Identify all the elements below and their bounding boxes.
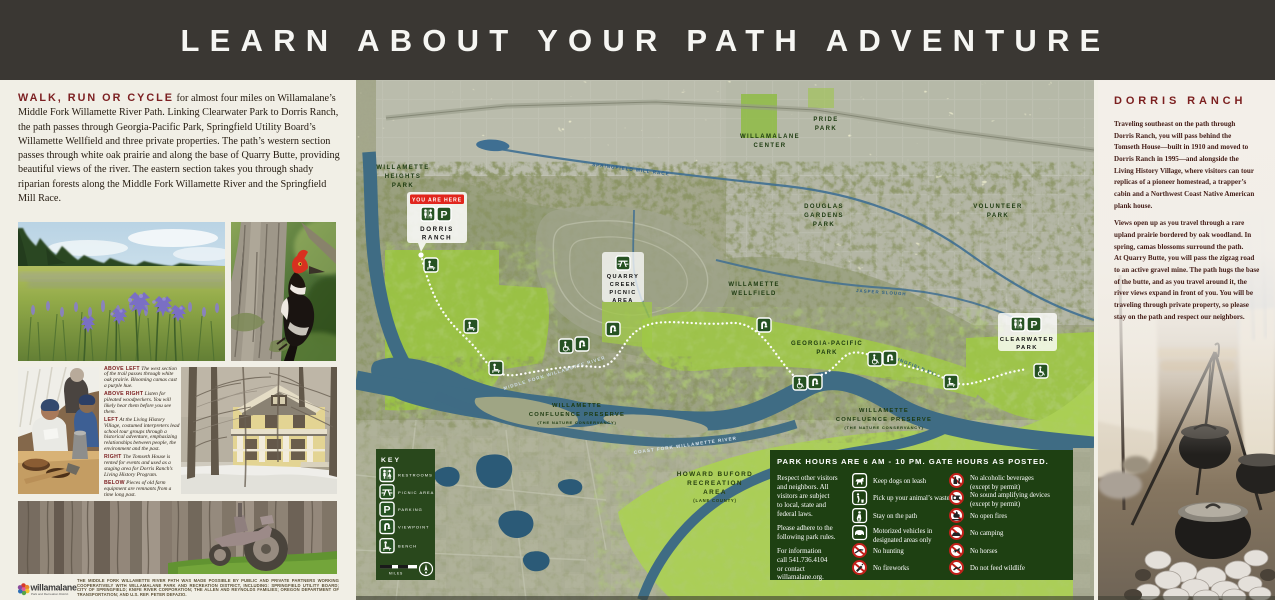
svg-text:PARK HOURS ARE 6 AM - 10 PM. G: PARK HOURS ARE 6 AM - 10 PM. GATE HOURS … — [777, 457, 1049, 466]
svg-text:BENCH: BENCH — [398, 544, 417, 549]
svg-text:CLEARWATER: CLEARWATER — [1000, 337, 1054, 343]
svg-text:CONFLUENCE PRESERVE: CONFLUENCE PRESERVE — [836, 417, 932, 423]
svg-text:For information: For information — [777, 547, 822, 555]
svg-text:PARK: PARK — [1016, 345, 1038, 351]
svg-text:federal laws.: federal laws. — [777, 510, 813, 518]
svg-text:No hunting: No hunting — [873, 548, 904, 555]
svg-text:(except by permit): (except by permit) — [970, 501, 1020, 508]
svg-text:call 541.736.4104: call 541.736.4104 — [777, 556, 828, 564]
svg-text:CREEK: CREEK — [610, 282, 637, 288]
svg-text:PICNIC AREA: PICNIC AREA — [398, 490, 434, 495]
svg-text:HEIGHTS: HEIGHTS — [385, 174, 421, 180]
svg-text:RESTROOMS: RESTROOMS — [398, 473, 433, 478]
svg-text:following park rules.: following park rules. — [777, 533, 836, 541]
svg-text:RANCH: RANCH — [422, 235, 452, 242]
svg-text:WILLAMALANE: WILLAMALANE — [740, 134, 800, 140]
svg-text:PICNIC: PICNIC — [609, 290, 636, 296]
svg-text:No alcoholic beverages: No alcoholic beverages — [970, 475, 1034, 482]
svg-text:CONFLUENCE PRESERVE: CONFLUENCE PRESERVE — [529, 412, 625, 418]
svg-text:designated areas only: designated areas only — [873, 537, 932, 544]
svg-text:PRIDE: PRIDE — [813, 117, 838, 123]
svg-text:and neighbors. All: and neighbors. All — [777, 483, 829, 491]
svg-text:PARK: PARK — [392, 183, 414, 189]
svg-text:PARK: PARK — [987, 213, 1009, 219]
svg-text:(THE NATURE CONSERVANCY): (THE NATURE CONSERVANCY) — [537, 420, 616, 425]
svg-text:Keep dogs on leash: Keep dogs on leash — [873, 478, 927, 485]
svg-text:PARK: PARK — [813, 222, 835, 228]
svg-text:WILLAMETTE: WILLAMETTE — [552, 403, 602, 409]
svg-text:Stay on the path: Stay on the path — [873, 513, 918, 520]
svg-text:VIEWPOINT: VIEWPOINT — [398, 525, 429, 530]
svg-text:No open fires: No open fires — [970, 513, 1007, 520]
svg-text:PARK: PARK — [816, 350, 837, 356]
svg-text:No camping: No camping — [970, 530, 1004, 537]
svg-text:PARKING: PARKING — [398, 507, 423, 512]
svg-text:RECREATION: RECREATION — [687, 480, 743, 487]
svg-text:visitors are subject: visitors are subject — [777, 492, 830, 500]
svg-text:AREA: AREA — [612, 298, 633, 304]
svg-text:PARK: PARK — [815, 126, 837, 132]
svg-text:WELLFIELD: WELLFIELD — [731, 291, 776, 297]
svg-text:WILLAMETTE: WILLAMETTE — [859, 408, 909, 414]
svg-text:Park and Recreation District: Park and Recreation District — [31, 592, 69, 596]
svg-text:Motorized vehicles in: Motorized vehicles in — [873, 528, 933, 535]
svg-text:or contact: or contact — [777, 565, 805, 573]
svg-text:(THE NATURE CONSERVANCY): (THE NATURE CONSERVANCY) — [844, 425, 923, 430]
svg-text:No horses: No horses — [970, 548, 998, 555]
svg-text:VOLUNTEER: VOLUNTEER — [973, 204, 1023, 210]
svg-text:Pick up your animal’s waste: Pick up your animal’s waste — [873, 495, 950, 502]
svg-text:WILLAMETTE: WILLAMETTE — [728, 282, 779, 288]
svg-text:GEORGIA-PACIFIC: GEORGIA-PACIFIC — [791, 341, 863, 347]
svg-text:to local, state and: to local, state and — [777, 501, 826, 509]
svg-text:willamalane.org.: willamalane.org. — [777, 573, 824, 581]
svg-text:Respect other visitors: Respect other visitors — [777, 474, 838, 482]
svg-text:AREA: AREA — [703, 489, 727, 496]
svg-text:MILES: MILES — [389, 572, 403, 576]
svg-text:No sound amplifying devices: No sound amplifying devices — [970, 492, 1050, 499]
svg-text:HOWARD BUFORD: HOWARD BUFORD — [677, 471, 753, 478]
svg-text:Do not feed wildlife: Do not feed wildlife — [970, 565, 1025, 572]
svg-text:WILLAMETTE: WILLAMETTE — [376, 165, 429, 171]
svg-text:YOU ARE HERE: YOU ARE HERE — [412, 198, 462, 204]
svg-text:(except by permit): (except by permit) — [970, 484, 1020, 491]
svg-text:Please adhere to the: Please adhere to the — [777, 524, 833, 532]
svg-text:CENTER: CENTER — [753, 143, 786, 149]
svg-text:KEY: KEY — [381, 457, 401, 464]
svg-text:GARDENS: GARDENS — [804, 213, 844, 219]
svg-text:DOUGLAS: DOUGLAS — [804, 204, 844, 210]
svg-text:DORRIS: DORRIS — [420, 226, 454, 233]
svg-text:(LANE COUNTY): (LANE COUNTY) — [693, 498, 736, 503]
svg-text:QUARRY: QUARRY — [607, 274, 639, 280]
svg-text:No fireworks: No fireworks — [873, 565, 909, 572]
